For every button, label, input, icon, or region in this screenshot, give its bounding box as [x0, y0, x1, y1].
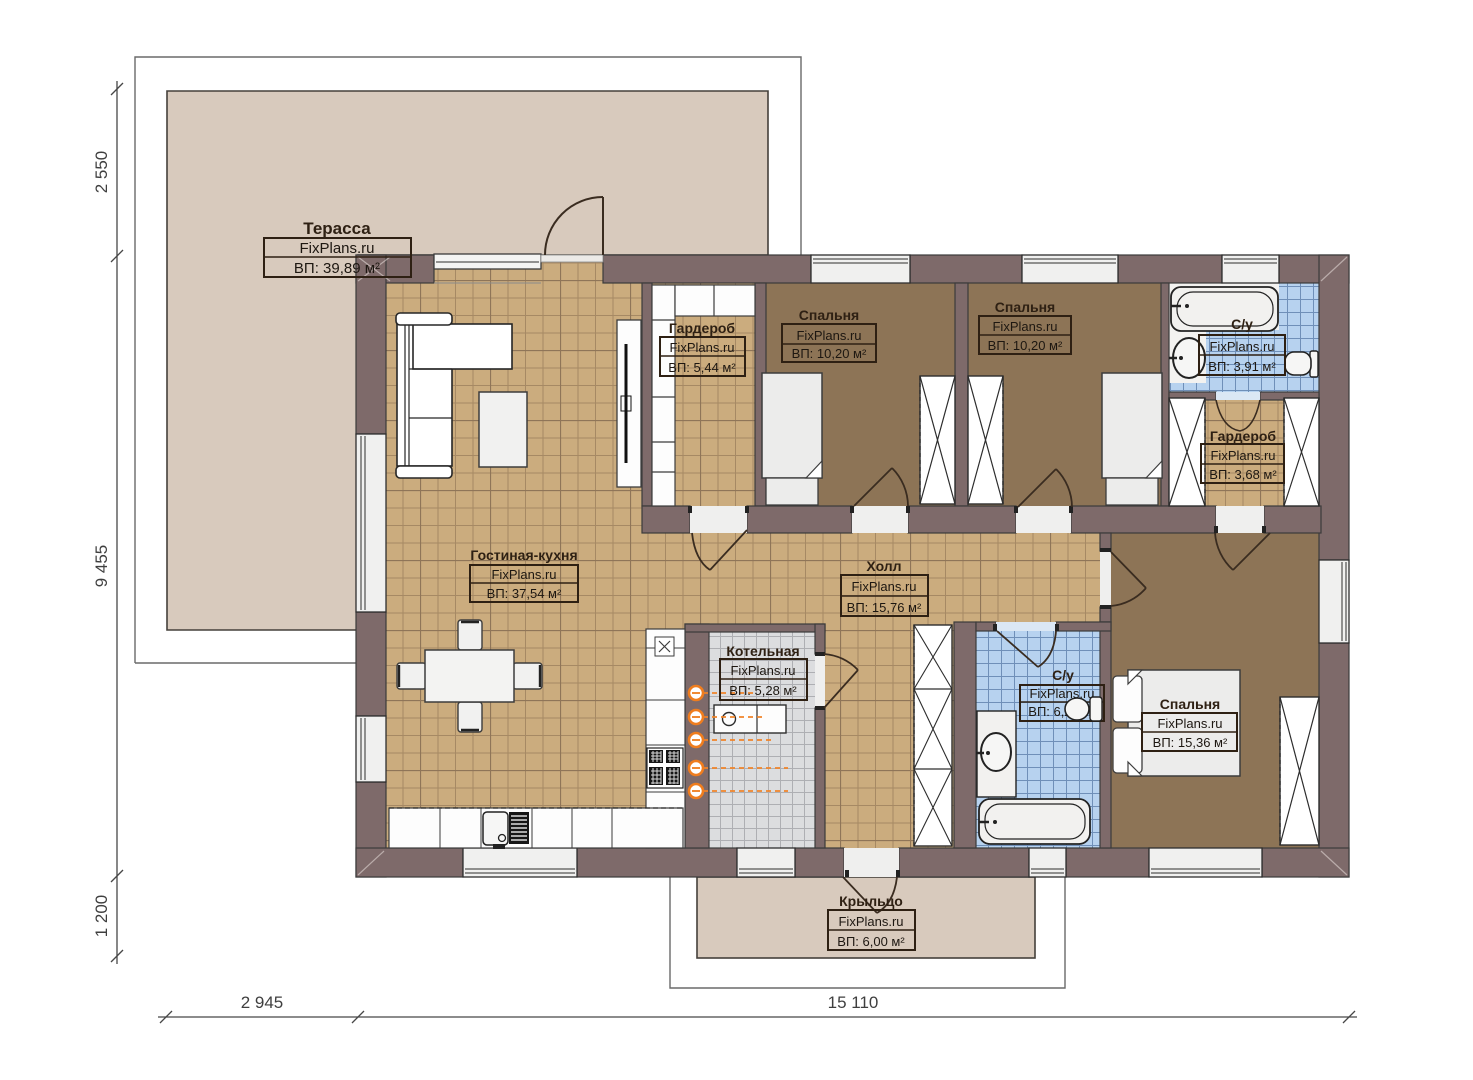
svg-text:ВП: 3,91 м²: ВП: 3,91 м² — [1208, 359, 1276, 374]
svg-text:ВП: 10,20 м²: ВП: 10,20 м² — [988, 338, 1063, 353]
svg-text:Спальня: Спальня — [799, 307, 859, 323]
svg-text:Спальня: Спальня — [1160, 696, 1220, 712]
svg-text:FixPlans.ru: FixPlans.ru — [491, 567, 556, 582]
svg-text:FixPlans.ru: FixPlans.ru — [838, 914, 903, 929]
svg-text:FixPlans.ru: FixPlans.ru — [1157, 716, 1222, 731]
svg-text:ВП: 37,54 м²: ВП: 37,54 м² — [487, 586, 562, 601]
svg-text:ВП: 10,20 м²: ВП: 10,20 м² — [792, 346, 867, 361]
svg-text:9 455: 9 455 — [92, 545, 111, 588]
svg-text:Холл: Холл — [866, 558, 901, 574]
svg-text:15 110: 15 110 — [828, 993, 879, 1012]
svg-text:FixPlans.ru: FixPlans.ru — [1029, 686, 1094, 701]
svg-text:ВП: 39,89 м²: ВП: 39,89 м² — [294, 260, 380, 277]
svg-text:Гардероб: Гардероб — [1210, 428, 1277, 444]
svg-text:ВП: 6,00 м²: ВП: 6,00 м² — [837, 934, 905, 949]
svg-text:ВП: 5,28 м²: ВП: 5,28 м² — [729, 683, 797, 698]
svg-text:FixPlans.ru: FixPlans.ru — [851, 579, 916, 594]
svg-text:С/у: С/у — [1231, 316, 1253, 332]
svg-text:FixPlans.ru: FixPlans.ru — [730, 663, 795, 678]
svg-text:Гостиная-кухня: Гостиная-кухня — [470, 547, 577, 563]
svg-text:С/у: С/у — [1052, 667, 1074, 683]
svg-text:2 945: 2 945 — [241, 993, 284, 1012]
svg-text:Котельная: Котельная — [726, 643, 799, 659]
svg-text:FixPlans.ru: FixPlans.ru — [1209, 339, 1274, 354]
svg-text:ВП: 15,76 м²: ВП: 15,76 м² — [847, 600, 922, 615]
svg-text:FixPlans.ru: FixPlans.ru — [992, 319, 1057, 334]
svg-text:FixPlans.ru: FixPlans.ru — [796, 328, 861, 343]
svg-text:Крыльцо: Крыльцо — [839, 893, 903, 909]
svg-text:FixPlans.ru: FixPlans.ru — [299, 240, 374, 257]
svg-text:Гардероб: Гардероб — [669, 320, 736, 336]
svg-text:1 200: 1 200 — [92, 895, 111, 938]
svg-text:2 550: 2 550 — [92, 151, 111, 194]
svg-text:Терасса: Терасса — [303, 219, 371, 238]
svg-text:FixPlans.ru: FixPlans.ru — [1210, 448, 1275, 463]
svg-text:Спальня: Спальня — [995, 299, 1055, 315]
svg-text:ВП: 5,44 м²: ВП: 5,44 м² — [668, 360, 736, 375]
svg-text:FixPlans.ru: FixPlans.ru — [669, 340, 734, 355]
svg-text:ВП: 15,36 м²: ВП: 15,36 м² — [1153, 735, 1228, 750]
svg-text:ВП: 3,68 м²: ВП: 3,68 м² — [1209, 467, 1277, 482]
